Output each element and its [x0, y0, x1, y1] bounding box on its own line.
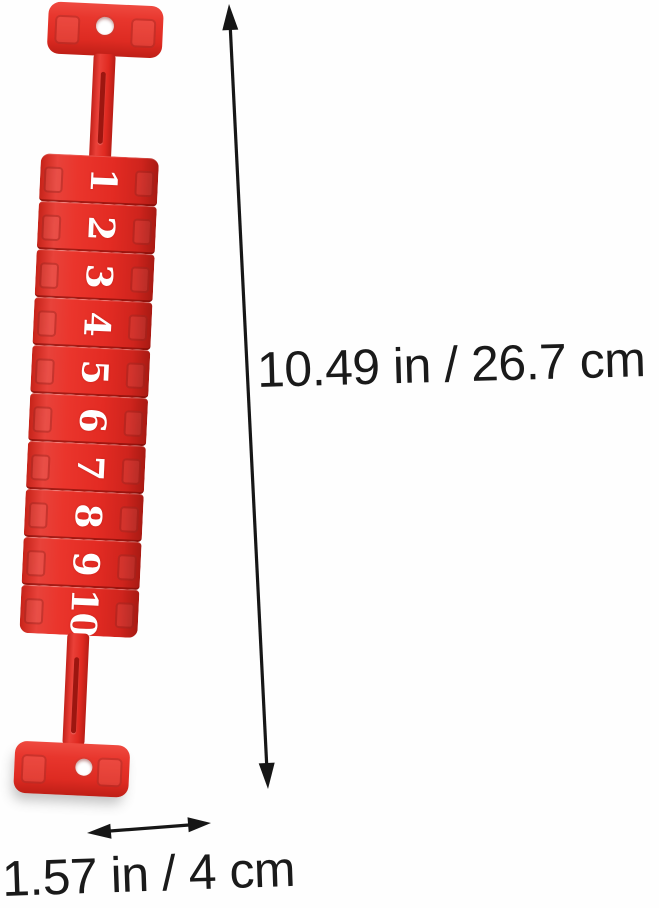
top-rod-slot: [98, 72, 106, 144]
bead-number: 4: [78, 311, 115, 337]
bead-right-indent: [126, 362, 146, 389]
bead-number: 9: [67, 550, 104, 576]
bead-right-indent: [130, 266, 150, 293]
bead-left-indent: [41, 214, 61, 241]
bead: 5: [30, 345, 150, 398]
product-image: 12345678910 10.49 in / 26.7 cm 1.57 in /…: [0, 0, 659, 905]
bead: 2: [37, 201, 157, 254]
bead-right-indent: [121, 458, 141, 485]
bead: 7: [26, 441, 146, 494]
bead-left-indent: [33, 406, 53, 433]
bead-right-indent: [119, 506, 139, 533]
bead-number: 1: [85, 167, 122, 193]
bead-number: 8: [69, 502, 106, 528]
bead-number: 7: [71, 454, 108, 480]
width-arrow: [87, 817, 211, 839]
bead-right-indent: [128, 314, 148, 341]
bead-left-indent: [24, 598, 44, 625]
bead-left-indent: [43, 166, 63, 193]
bead-right-indent: [115, 602, 135, 629]
bead-number: 10: [64, 587, 102, 637]
bead-left-indent: [39, 262, 59, 289]
bead-right-indent: [132, 218, 152, 245]
bead-left-indent: [35, 358, 55, 385]
top-cap-left-indent: [54, 15, 80, 45]
score-counter: 12345678910: [12, 1, 166, 798]
top-rod: [89, 53, 116, 160]
bead-left-indent: [30, 454, 50, 481]
height-dimension-label: 10.49 in / 26.7 cm: [256, 330, 646, 399]
bead: 1: [39, 153, 159, 206]
bead-number: 5: [76, 358, 113, 384]
bead: 6: [28, 393, 148, 446]
bottom-cap: [13, 741, 130, 798]
bead-right-indent: [117, 554, 137, 581]
bead-left-indent: [26, 550, 46, 577]
bead: 10: [19, 585, 139, 638]
bead-number: 3: [80, 263, 117, 289]
bead: 3: [35, 249, 155, 302]
bead-right-indent: [134, 170, 154, 197]
top-cap-right-indent: [130, 18, 156, 48]
bottom-rod-slot: [71, 657, 79, 733]
bead-left-indent: [37, 310, 57, 337]
bottom-cap-right-indent: [97, 757, 123, 787]
bead: 8: [24, 489, 144, 542]
bead: 4: [32, 297, 152, 350]
bead-left-indent: [28, 502, 48, 529]
bead-stack: 12345678910: [19, 153, 159, 638]
bottom-rod: [62, 633, 89, 746]
bead: 9: [22, 537, 142, 590]
bottom-cap-left-indent: [21, 754, 47, 784]
bead-number: 6: [74, 406, 111, 432]
width-dimension-label: 1.57 in / 4 cm: [1, 840, 296, 908]
bead-right-indent: [123, 410, 143, 437]
bead-number: 2: [82, 215, 119, 241]
